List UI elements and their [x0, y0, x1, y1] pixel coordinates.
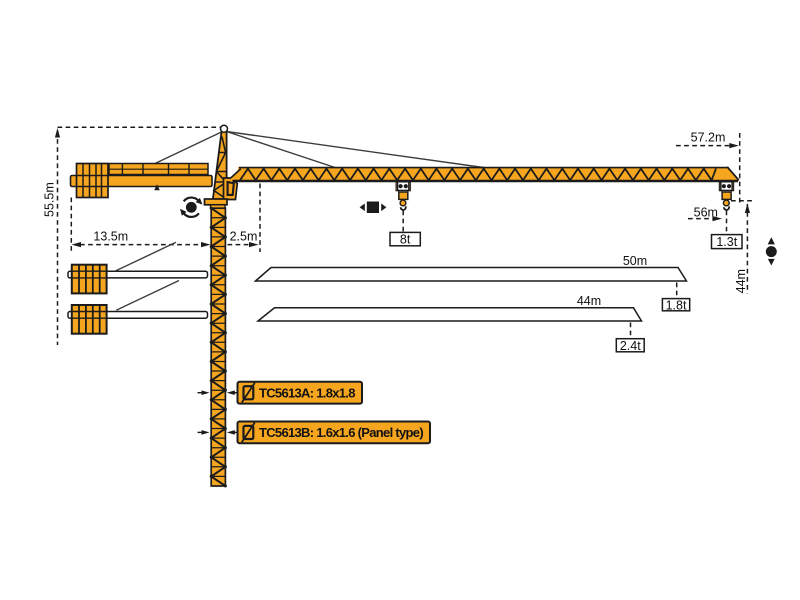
- svg-text:44m: 44m: [577, 294, 601, 308]
- svg-text:55.5m: 55.5m: [43, 182, 57, 217]
- svg-text:1.8t: 1.8t: [666, 298, 687, 312]
- svg-text:50m: 50m: [623, 254, 647, 268]
- svg-text:2.5m: 2.5m: [230, 230, 258, 244]
- svg-text:13.5m: 13.5m: [93, 230, 128, 244]
- svg-text:TC5613B: 1.6x1.6 (Panel type: TC5613B: 1.6x1.6 (Panel type): [259, 425, 423, 440]
- svg-text:57.2m: 57.2m: [691, 131, 726, 145]
- svg-text:44m: 44m: [734, 269, 748, 293]
- svg-text:1.3t: 1.3t: [716, 235, 737, 249]
- svg-text:TC5613A: 1.8x1.8: TC5613A: 1.8x1.8: [259, 386, 355, 401]
- svg-text:2.4t: 2.4t: [620, 339, 641, 353]
- svg-text:8t: 8t: [400, 233, 411, 247]
